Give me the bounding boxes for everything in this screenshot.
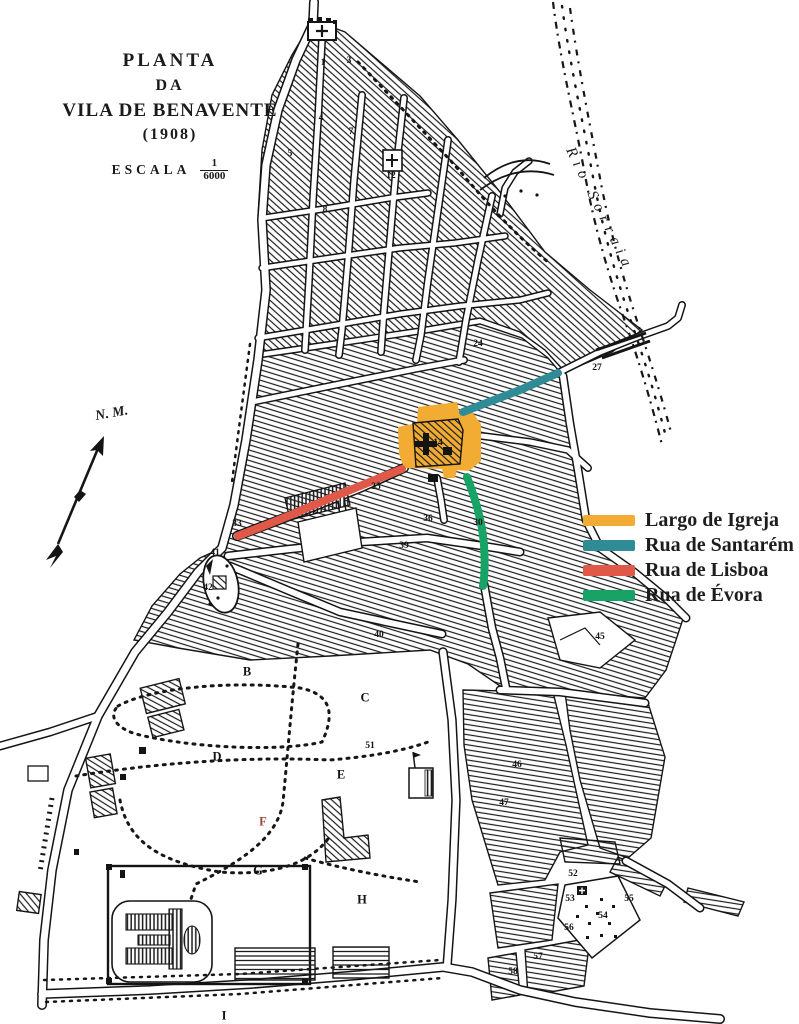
legend-label: Rua de Lisboa [645,559,768,582]
river-bank-east [570,8,672,436]
chapel-12 [383,150,402,171]
legend-row-rua-de-santarem: Rua de Santarém [583,533,794,558]
title-block: PLANTA DA VILA DE BENAVENTE (1908) ESCAL… [52,50,288,182]
legend-label: Largo de Igreja [645,509,779,532]
outlying-building [17,892,41,914]
flag-icon [413,752,421,758]
title-line-4: (1908) [52,126,288,144]
warehouse [333,947,389,978]
legend-swatch-green [583,590,635,601]
scale-label: ESCALA [112,162,191,178]
river: Rio Sorraia [553,2,672,445]
legend-row-rua-de-evora: Rua de Évora [583,583,794,608]
flag-building [409,752,433,798]
title-line-3: VILA DE BENAVENTE [52,100,288,122]
chapel-top [308,17,337,40]
outlying-building [90,788,117,818]
legend-swatch-teal [583,540,635,551]
legend-swatch-orange [583,515,635,526]
warehouse [235,948,315,980]
outlying-building [148,709,184,737]
arrow-fletch [46,544,63,568]
scale-denominator: 6000 [200,170,228,183]
block-52 [560,838,620,864]
scale-numerator: 1 [212,158,218,170]
map-page: Rio Sorraia N. M. PLANTA DA VILA DE BENA… [0,0,799,1024]
block-56 [490,884,558,948]
legend: Largo de Igreja Rua de Santarém Rua de L… [583,508,794,608]
title-line-2: DA [52,77,288,95]
legend-label: Rua de Santarém [645,534,794,557]
title-line-1: PLANTA [52,50,288,72]
block-57 [525,938,590,996]
legend-label: Rua de Évora [645,584,763,607]
legend-row-largo-de-igreja: Largo de Igreja [583,508,794,533]
river-label: Rio Sorraia [562,144,637,275]
legend-swatch-red [583,565,635,576]
scale-row: ESCALA 1 6000 [52,158,288,182]
north-arrow: N. M. [46,403,129,568]
l-shaped-building [322,797,370,862]
legend-row-rua-de-lisboa: Rua de Lisboa [583,558,794,583]
north-label: N. M. [93,403,129,424]
scale-fraction: 1 6000 [200,158,228,182]
